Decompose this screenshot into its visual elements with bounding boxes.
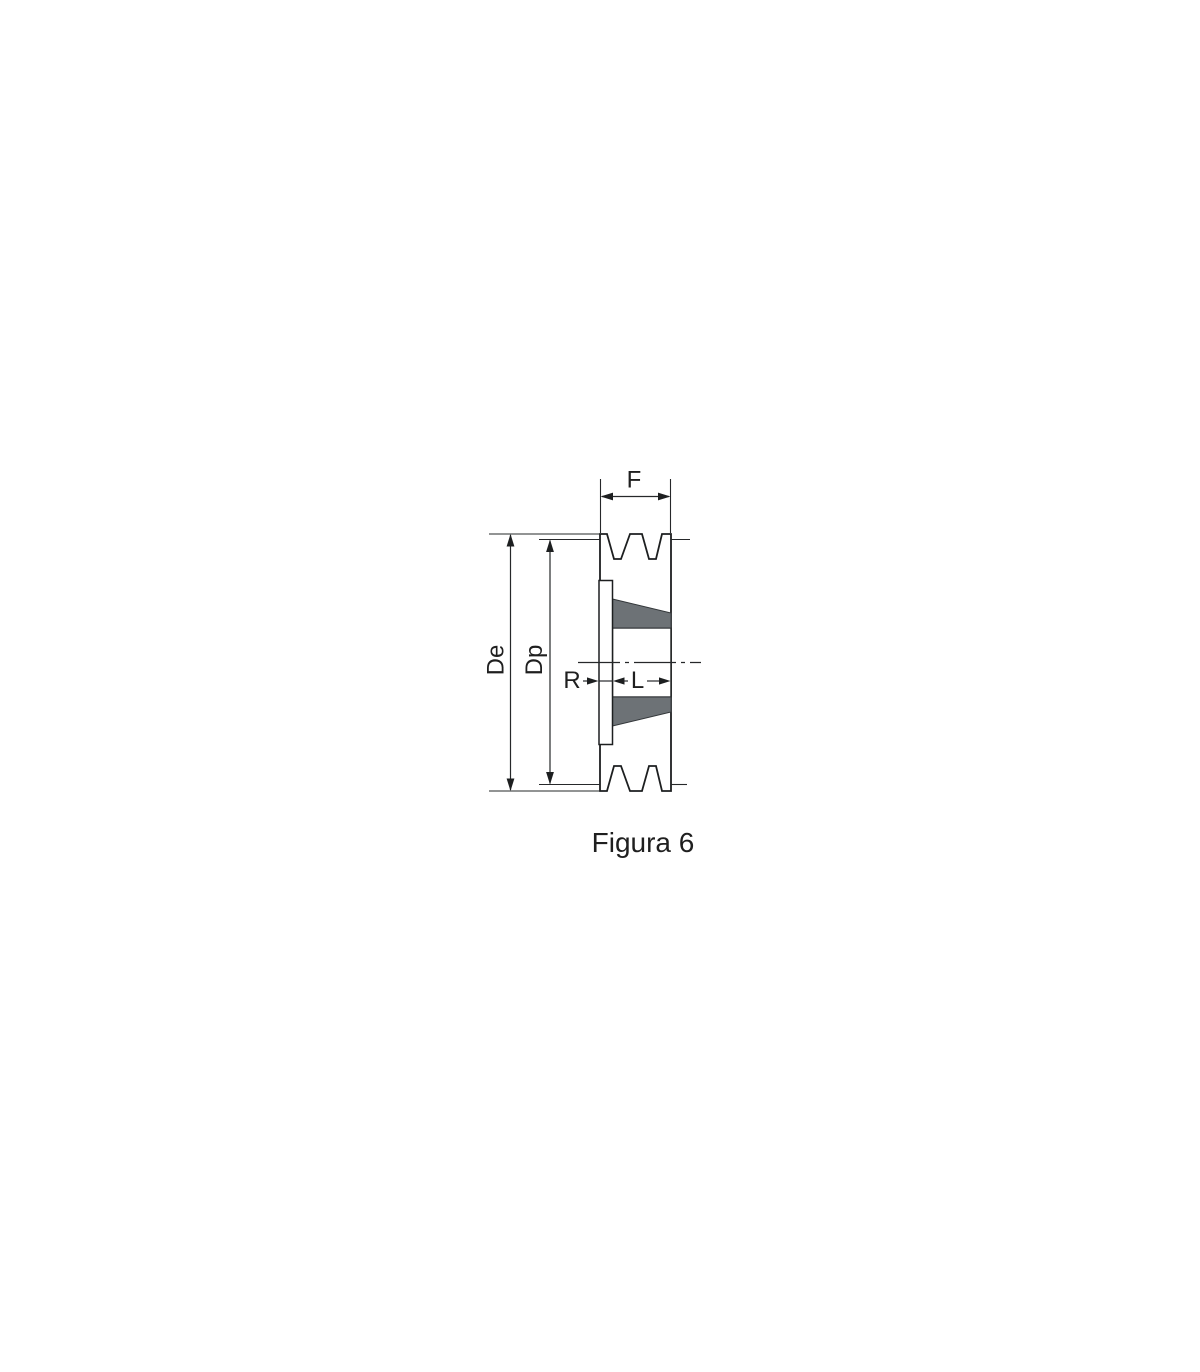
figure-caption: Figura 6	[592, 827, 695, 858]
de-arrow-bottom	[507, 779, 515, 792]
dp-label: Dp	[521, 645, 548, 676]
dp-arrow-top	[546, 540, 554, 553]
dimension-F: F	[601, 467, 671, 534]
r-arrow-right	[587, 677, 599, 684]
f-arrow-left	[601, 493, 614, 501]
l-label: L	[631, 667, 644, 694]
de-arrow-top	[507, 534, 515, 547]
taper-bushing-lower	[613, 697, 672, 726]
taper-bushing-upper	[613, 599, 672, 628]
f-arrow-right	[658, 493, 671, 501]
r-label: R	[563, 667, 580, 694]
de-label: De	[483, 645, 510, 676]
figure-page: F De Dp R	[0, 0, 1200, 1372]
dp-arrow-bottom	[546, 772, 554, 785]
f-label: F	[627, 467, 642, 494]
pulley-figure-drawing: F De Dp R	[0, 0, 1200, 1372]
